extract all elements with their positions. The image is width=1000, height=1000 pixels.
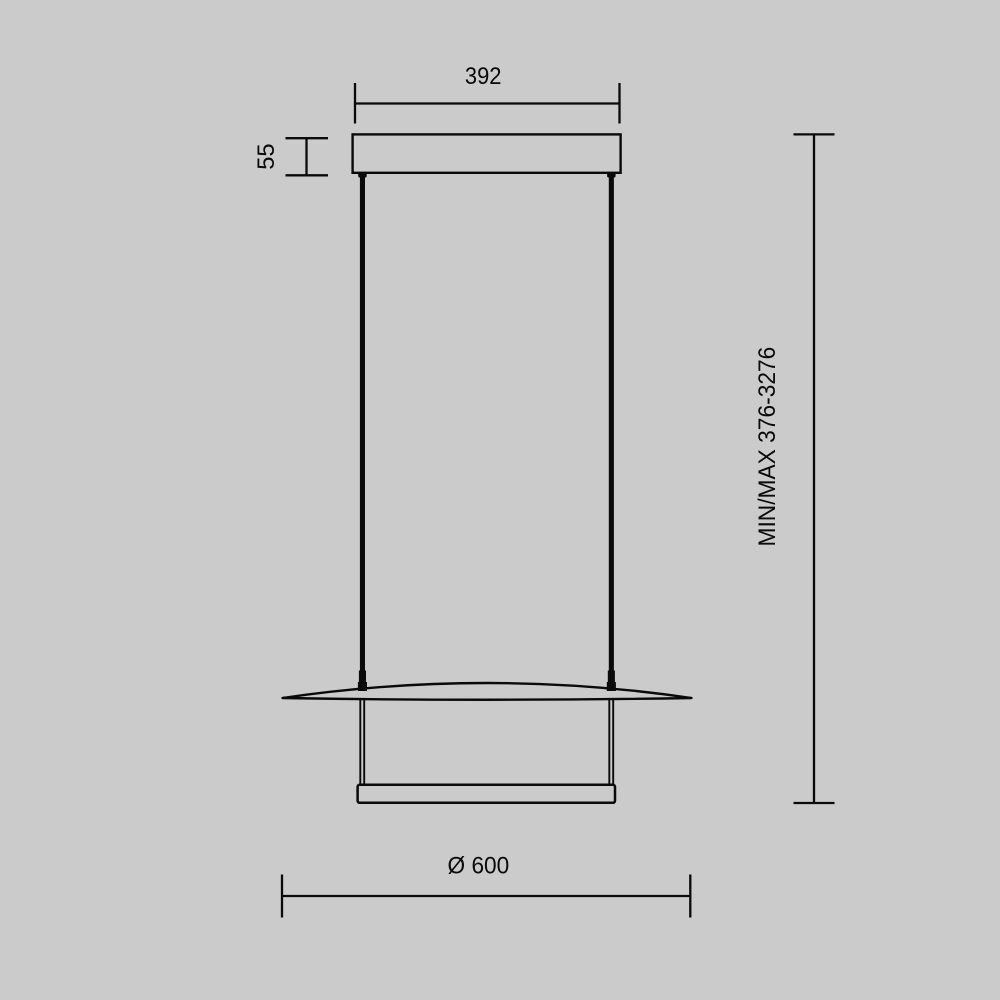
svg-text:392: 392	[465, 63, 502, 90]
svg-text:Ø 600: Ø 600	[448, 853, 510, 880]
svg-text:55: 55	[253, 143, 280, 169]
svg-text:MIN/MAX 376-3276: MIN/MAX 376-3276	[754, 347, 781, 547]
